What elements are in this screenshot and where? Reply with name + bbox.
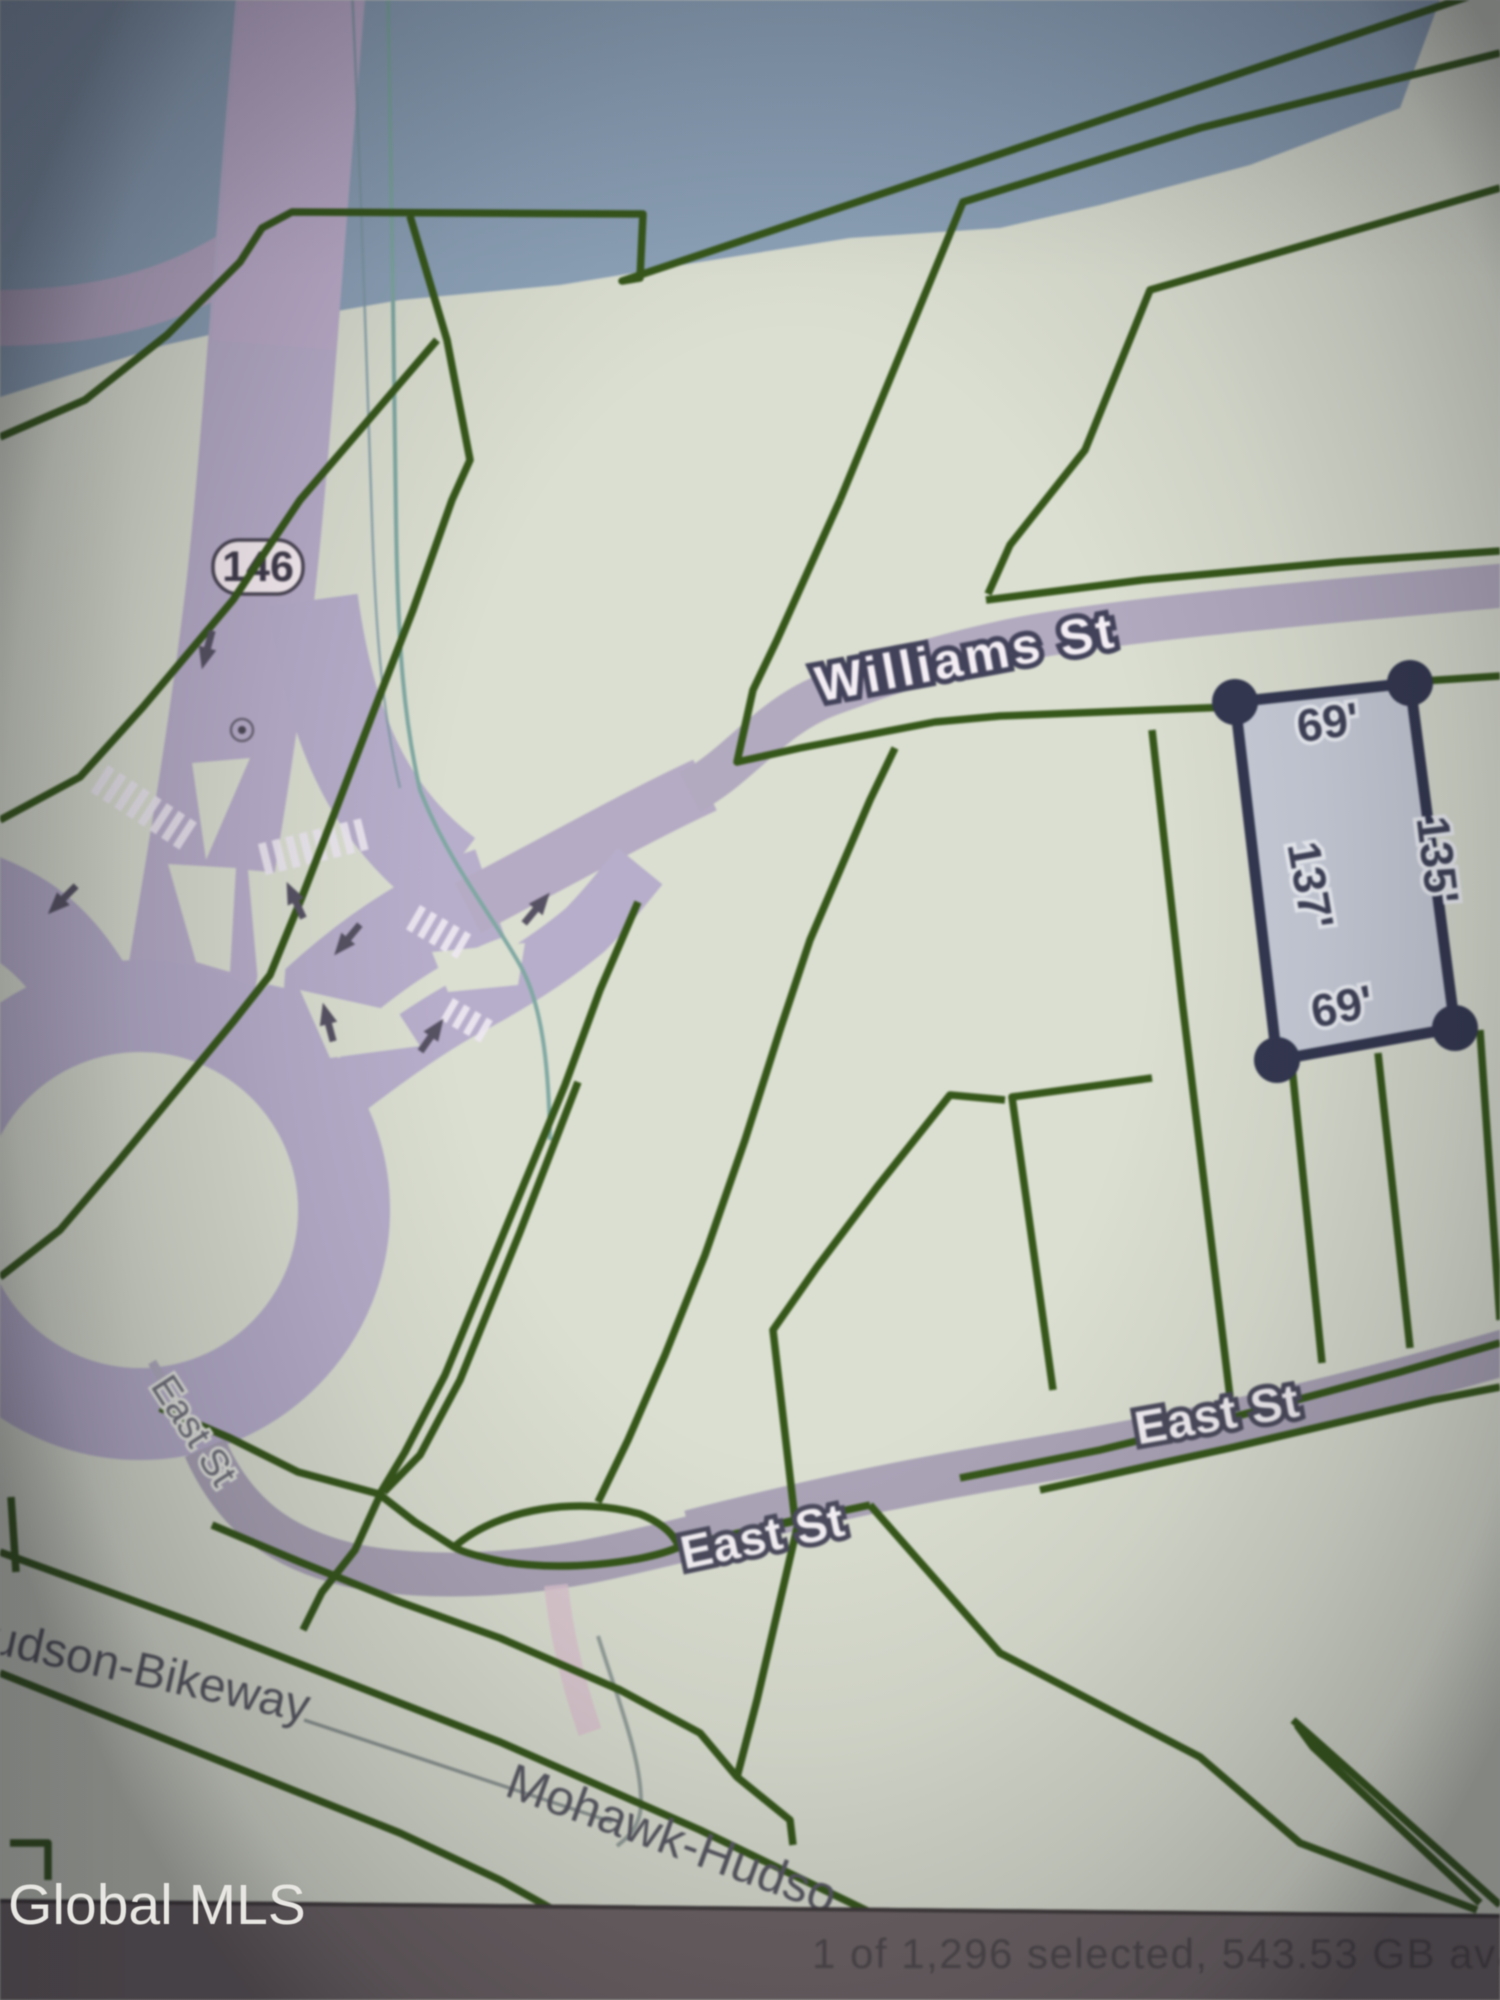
svg-text:Global MLS: Global MLS [8,1873,306,1937]
